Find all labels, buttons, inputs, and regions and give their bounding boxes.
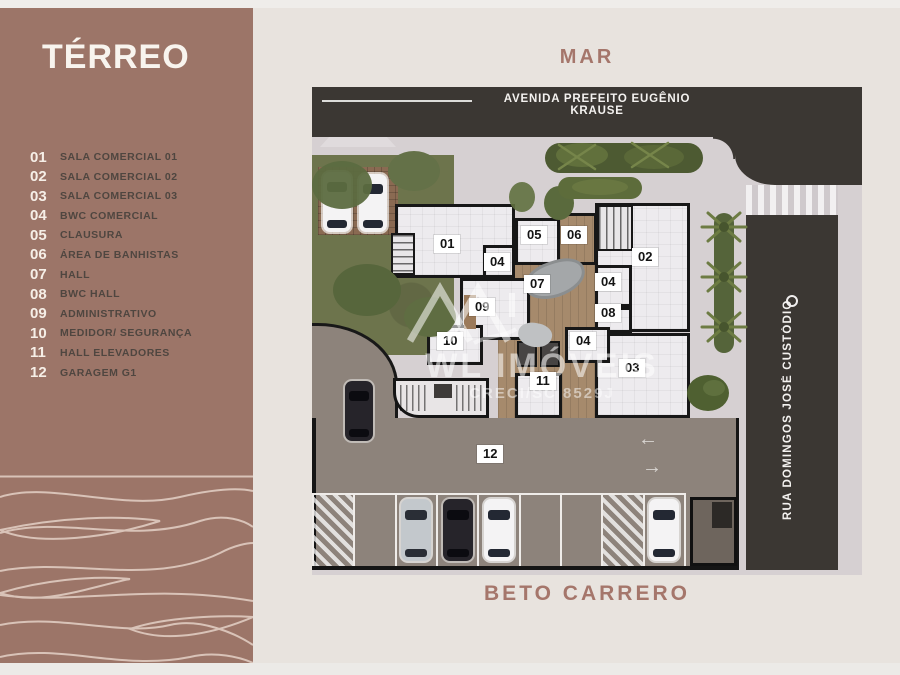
car-rear-glass — [488, 549, 510, 557]
parked-car — [443, 499, 473, 561]
legend-label: MEDIDOR/ SEGURANÇA — [60, 327, 192, 339]
legend-label: ÁREA DE BANHISTAS — [60, 249, 179, 261]
legend-item: 11HALL ELEVADORES — [30, 346, 240, 360]
car-rear-glass — [327, 220, 347, 228]
road-junction — [735, 137, 862, 185]
room-marker-09: 09 — [469, 298, 495, 316]
car-windshield — [488, 510, 510, 521]
car-windshield — [327, 182, 347, 192]
legend-item: 12GARAGEM G1 — [30, 366, 240, 380]
car-rear-glass — [349, 429, 369, 437]
bottom-street-label: BETO CARRERO — [312, 582, 862, 606]
garage-stairwell — [393, 378, 489, 418]
room-marker-03: 03 — [619, 359, 645, 377]
room-marker-11: 11 — [530, 372, 556, 390]
room-marker-02: 02 — [632, 248, 658, 266]
room-marker-04b: 04 — [595, 273, 621, 291]
room-marker-08: 08 — [595, 304, 621, 322]
room-marker-07: 07 — [524, 275, 550, 293]
stair-flight — [400, 385, 426, 411]
legend-item: 05CLAUSURA — [30, 228, 240, 242]
parked-car — [323, 172, 351, 232]
utility-inner — [712, 502, 732, 528]
parked-car — [359, 174, 387, 232]
avenue-center-line — [322, 100, 472, 102]
legend-number: 09 — [30, 305, 60, 322]
stair-flight — [456, 385, 482, 411]
parking-stall-hatched — [603, 495, 644, 566]
legend-number: 06 — [30, 246, 60, 263]
utility-structure — [690, 497, 737, 566]
legend-label: ADMINISTRATIVO — [60, 308, 157, 320]
room-marker-04a: 04 — [484, 253, 510, 271]
legend-item: 02SALA COMERCIAL 02 — [30, 170, 240, 184]
legend-number: 07 — [30, 266, 60, 283]
legend-number: 12 — [30, 364, 60, 381]
room-marker-01: 01 — [434, 235, 460, 253]
crosswalk — [746, 185, 838, 215]
legend-number: 05 — [30, 227, 60, 244]
parked-car — [401, 499, 431, 561]
room-marker-04c: 04 — [570, 332, 596, 350]
site-plan: AVENIDA PREFEITO EUGÊNIO KRAUSE RUA DOMI… — [312, 85, 862, 577]
car-rear-glass — [363, 220, 383, 228]
parking-stall-hatched — [312, 495, 355, 566]
parking-stall — [479, 495, 520, 566]
legend-label: SALA COMERCIAL 02 — [60, 171, 178, 183]
sidebar: TÉRREO 01SALA COMERCIAL 01 02SALA COMERC… — [0, 8, 253, 663]
car-windshield — [405, 510, 427, 521]
stair-core — [434, 384, 452, 398]
decorative-waves — [0, 475, 253, 663]
car-windshield — [363, 184, 383, 194]
legend-number: 08 — [30, 286, 60, 303]
bottom-frame-strip — [0, 663, 900, 675]
top-frame-strip — [0, 0, 900, 8]
car-windshield — [653, 510, 675, 521]
car-rear-glass — [653, 549, 675, 557]
stairs-west — [391, 233, 415, 275]
driveway-apron — [320, 137, 396, 147]
parking-stall — [355, 495, 396, 566]
legend-label: CLAUSURA — [60, 229, 123, 241]
parked-car — [484, 499, 514, 561]
room-legend: 01SALA COMERCIAL 01 02SALA COMERCIAL 02 … — [30, 150, 240, 380]
legend-label: BWC COMERCIAL — [60, 210, 158, 222]
room-marker-10: 10 — [437, 332, 463, 350]
lane-arrow-right: → — [642, 457, 662, 477]
legend-item: 01SALA COMERCIAL 01 — [30, 150, 240, 164]
legend-item: 04BWC COMERCIAL — [30, 209, 240, 223]
car-windshield — [447, 510, 469, 521]
legend-label: HALL — [60, 269, 90, 281]
parking-stall — [521, 495, 562, 566]
legend-number: 03 — [30, 188, 60, 205]
room-marker-06: 06 — [561, 226, 587, 244]
floor-title: TÉRREO — [42, 38, 190, 77]
legend-item: 03SALA COMERCIAL 03 — [30, 189, 240, 203]
legend-number: 10 — [30, 325, 60, 342]
road-corner-fillet — [713, 137, 735, 159]
parking-stall — [438, 495, 479, 566]
legend-label: SALA COMERCIAL 03 — [60, 190, 178, 202]
stairs-northeast — [597, 205, 633, 251]
legend-label: GARAGEM G1 — [60, 367, 137, 379]
legend-number: 11 — [30, 344, 60, 361]
car-rear-glass — [405, 549, 427, 557]
side-street-name: RUA DOMINGOS JOSÉ CUSTÓDIO — [782, 290, 794, 520]
parking-row — [312, 493, 686, 566]
legend-item: 06ÁREA DE BANHISTAS — [30, 248, 240, 262]
parking-stall — [645, 495, 686, 566]
legend-item: 09ADMINISTRATIVO — [30, 307, 240, 321]
legend-label: HALL ELEVADORES — [60, 347, 170, 359]
legend-item: 07HALL — [30, 268, 240, 282]
garage-parked-car — [345, 381, 373, 441]
parking-stall — [397, 495, 438, 566]
car-rear-glass — [447, 549, 469, 557]
legend-number: 01 — [30, 149, 60, 166]
lane-arrow-left: ← — [638, 429, 658, 449]
room-marker-05: 05 — [521, 226, 547, 244]
room-marker-12: 12 — [477, 445, 503, 463]
parking-stall — [562, 495, 603, 566]
legend-label: SALA COMERCIAL 01 — [60, 151, 178, 163]
parked-car — [649, 499, 679, 561]
avenue-name: AVENIDA PREFEITO EUGÊNIO KRAUSE — [477, 93, 717, 117]
legend-item: 10MEDIDOR/ SEGURANÇA — [30, 326, 240, 340]
legend-number: 04 — [30, 207, 60, 224]
legend-label: BWC HALL — [60, 288, 120, 300]
car-windshield — [349, 391, 369, 401]
legend-item: 08BWC HALL — [30, 287, 240, 301]
legend-number: 02 — [30, 168, 60, 185]
sea-label: MAR — [312, 46, 862, 69]
